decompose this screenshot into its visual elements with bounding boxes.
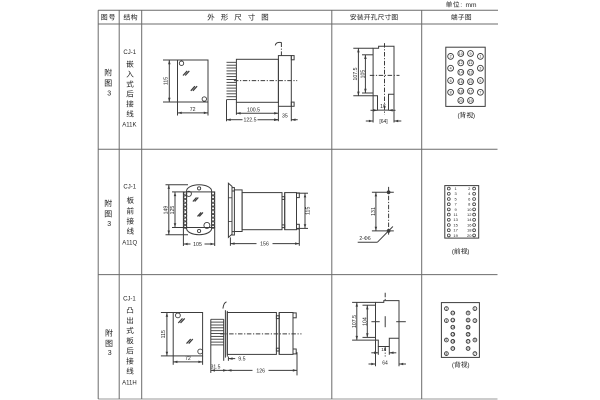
svg-text:104: 104 [362, 317, 368, 326]
svg-text:16: 16 [381, 347, 387, 352]
svg-text:115: 115 [163, 77, 169, 85]
svg-text:19: 19 [469, 99, 473, 103]
svg-text:3: 3 [108, 350, 112, 357]
svg-text:1: 1 [479, 55, 481, 59]
svg-text:35: 35 [282, 114, 288, 120]
svg-text:3: 3 [107, 221, 111, 228]
svg-text:149: 149 [163, 206, 169, 215]
svg-text:31.5: 31.5 [211, 364, 221, 370]
svg-text:A11H: A11H [122, 380, 137, 386]
svg-text:11: 11 [466, 318, 470, 322]
svg-text:5: 5 [474, 338, 476, 342]
svg-text:9: 9 [467, 311, 469, 315]
svg-text:6: 6 [446, 338, 448, 342]
svg-text:2: 2 [450, 55, 452, 59]
svg-text:107.5: 107.5 [353, 67, 359, 80]
svg-text:5: 5 [479, 79, 481, 83]
svg-text:72: 72 [185, 356, 191, 362]
svg-text:10: 10 [451, 311, 455, 315]
svg-text:9.5: 9.5 [238, 357, 245, 363]
svg-text:18: 18 [451, 340, 455, 344]
svg-text:11: 11 [469, 61, 473, 65]
svg-text:): ) [467, 248, 469, 255]
svg-text:14: 14 [459, 71, 463, 75]
svg-text:12: 12 [451, 318, 455, 322]
svg-text:15: 15 [466, 333, 470, 337]
svg-text:3: 3 [479, 67, 481, 71]
svg-text:126: 126 [256, 368, 265, 374]
svg-text:13: 13 [466, 325, 470, 329]
svg-text:72: 72 [190, 107, 196, 113]
svg-text:CJ-1: CJ-1 [123, 297, 136, 303]
svg-text:19: 19 [453, 233, 458, 238]
svg-text:4: 4 [450, 67, 452, 71]
svg-text:115: 115 [161, 330, 167, 338]
svg-text:4: 4 [446, 319, 448, 323]
svg-text:7: 7 [474, 352, 476, 356]
svg-text:6: 6 [450, 79, 452, 83]
svg-text:CJ-1: CJ-1 [123, 50, 136, 56]
svg-text:mm: mm [466, 2, 477, 9]
svg-text:A11Q: A11Q [122, 241, 137, 247]
svg-text:7: 7 [479, 91, 481, 95]
svg-text:107.5: 107.5 [352, 315, 358, 328]
svg-text:1: 1 [474, 307, 476, 311]
svg-text:16: 16 [380, 104, 386, 110]
svg-text:12: 12 [459, 61, 463, 65]
svg-text:18: 18 [459, 89, 463, 93]
svg-text:19: 19 [466, 347, 470, 351]
svg-text:20: 20 [451, 347, 455, 351]
svg-text:20: 20 [467, 233, 472, 238]
svg-text:115: 115 [306, 207, 312, 215]
svg-text:13: 13 [469, 71, 473, 75]
svg-text:CJ-1: CJ-1 [123, 184, 136, 190]
svg-text:15: 15 [469, 80, 473, 84]
svg-text:9: 9 [470, 52, 472, 56]
svg-text:): ) [467, 362, 469, 369]
svg-text:3: 3 [474, 319, 476, 323]
svg-text:17: 17 [466, 340, 470, 344]
svg-text:14: 14 [451, 325, 455, 329]
svg-text:105: 105 [193, 242, 202, 248]
svg-text:64: 64 [382, 360, 388, 366]
svg-text:2: 2 [446, 307, 448, 311]
svg-text:8: 8 [446, 352, 448, 356]
svg-text:125: 125 [170, 206, 176, 215]
svg-text:A11K: A11K [122, 123, 136, 129]
svg-text:100.5: 100.5 [247, 107, 260, 113]
svg-text:17: 17 [469, 89, 473, 93]
svg-text:[64]: [64] [379, 119, 388, 125]
svg-text:122.5: 122.5 [244, 118, 257, 124]
svg-text:): ) [473, 112, 475, 119]
svg-text:10: 10 [459, 52, 463, 56]
svg-text:3: 3 [107, 90, 111, 97]
svg-text:20: 20 [459, 99, 463, 103]
svg-text:105: 105 [361, 70, 367, 79]
svg-text:16: 16 [459, 80, 463, 84]
svg-text:8: 8 [450, 91, 452, 95]
svg-text:16: 16 [451, 333, 455, 337]
svg-text:131: 131 [371, 207, 377, 216]
svg-text:156: 156 [260, 241, 269, 247]
svg-text:2-Φ6: 2-Φ6 [359, 236, 370, 242]
